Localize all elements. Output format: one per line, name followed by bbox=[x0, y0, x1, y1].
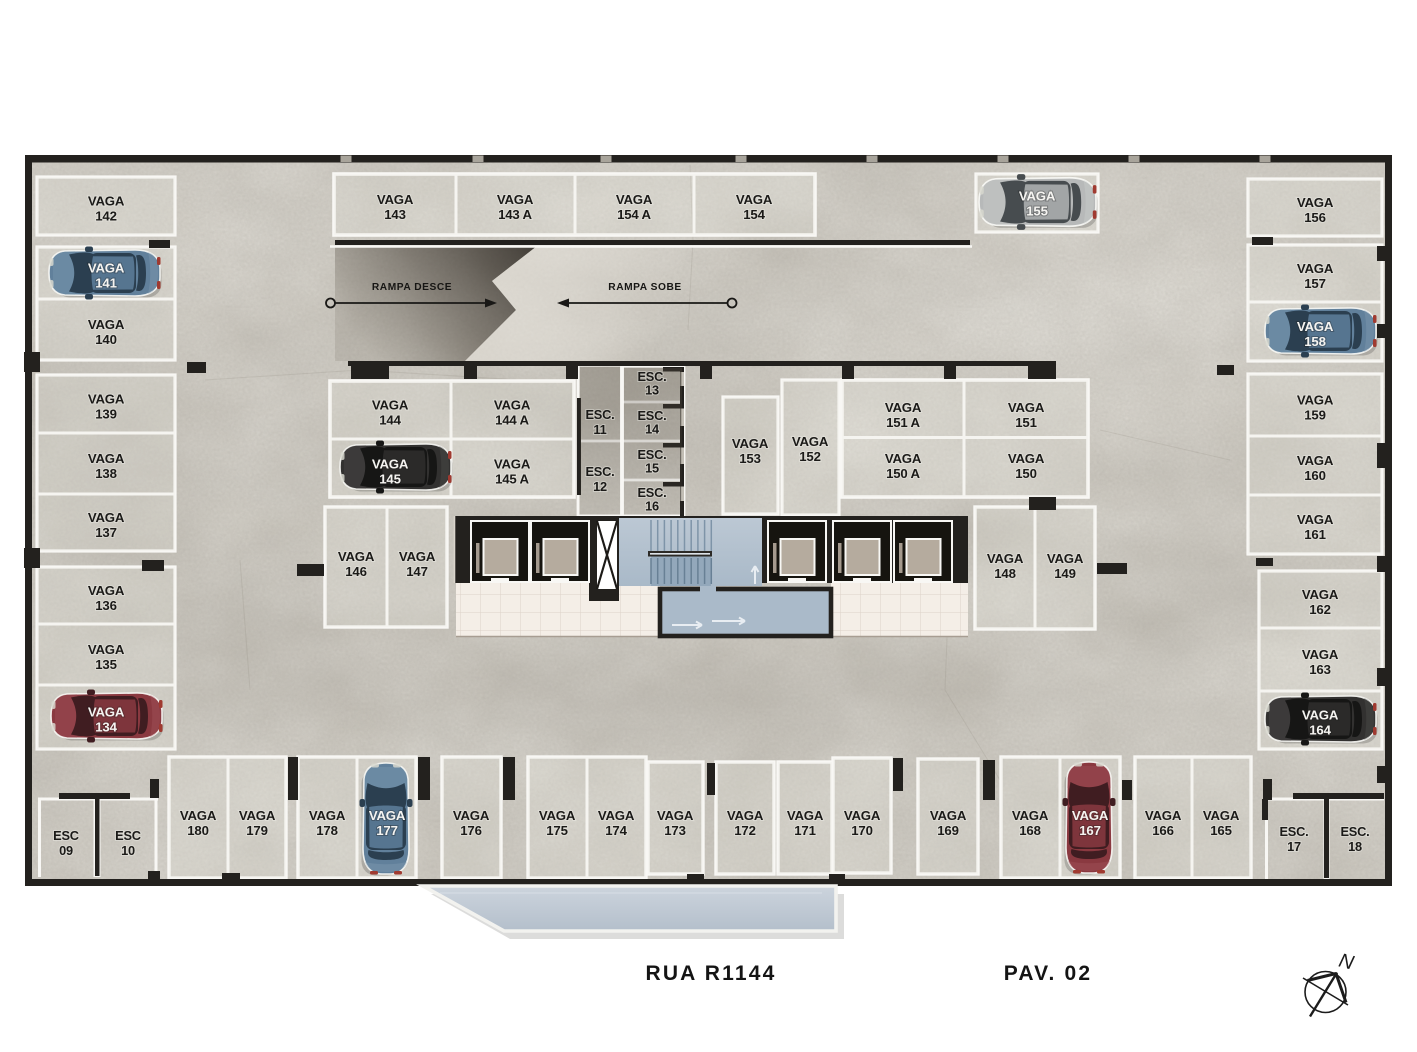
svg-text:140: 140 bbox=[95, 332, 116, 347]
svg-text:VAGA: VAGA bbox=[309, 808, 346, 823]
svg-text:VAGA: VAGA bbox=[338, 549, 375, 564]
svg-text:VAGA: VAGA bbox=[732, 436, 769, 451]
svg-text:145: 145 bbox=[379, 472, 400, 487]
svg-text:VAGA: VAGA bbox=[369, 808, 406, 823]
svg-text:RUA R1144: RUA R1144 bbox=[645, 962, 776, 985]
svg-text:VAGA: VAGA bbox=[1302, 587, 1339, 602]
svg-text:175: 175 bbox=[546, 823, 567, 838]
svg-text:ESC.: ESC. bbox=[1340, 824, 1369, 839]
svg-text:VAGA: VAGA bbox=[88, 583, 125, 598]
svg-text:12: 12 bbox=[593, 479, 607, 494]
svg-text:VAGA: VAGA bbox=[377, 192, 414, 207]
svg-text:VAGA: VAGA bbox=[1047, 551, 1084, 566]
svg-text:VAGA: VAGA bbox=[616, 192, 653, 207]
svg-text:VAGA: VAGA bbox=[497, 192, 534, 207]
svg-text:VAGA: VAGA bbox=[88, 642, 125, 657]
svg-text:VAGA: VAGA bbox=[372, 398, 409, 413]
svg-text:135: 135 bbox=[95, 657, 116, 672]
svg-text:VAGA: VAGA bbox=[1012, 808, 1049, 823]
svg-text:VAGA: VAGA bbox=[727, 808, 764, 823]
svg-text:10: 10 bbox=[121, 843, 135, 858]
svg-text:VAGA: VAGA bbox=[1008, 451, 1045, 466]
svg-text:176: 176 bbox=[460, 823, 481, 838]
svg-text:151 A: 151 A bbox=[886, 415, 920, 430]
svg-text:VAGA: VAGA bbox=[88, 705, 125, 720]
svg-text:151: 151 bbox=[1015, 415, 1036, 430]
svg-text:ESC: ESC bbox=[115, 828, 141, 843]
svg-text:141: 141 bbox=[95, 276, 116, 291]
svg-text:VAGA: VAGA bbox=[736, 192, 773, 207]
svg-text:VAGA: VAGA bbox=[1008, 400, 1045, 415]
svg-text:166: 166 bbox=[1152, 823, 1173, 838]
svg-text:155: 155 bbox=[1026, 204, 1047, 219]
svg-text:VAGA: VAGA bbox=[180, 808, 217, 823]
svg-text:VAGA: VAGA bbox=[1297, 393, 1334, 408]
svg-text:VAGA: VAGA bbox=[494, 398, 531, 413]
svg-text:158: 158 bbox=[1304, 334, 1325, 349]
svg-text:VAGA: VAGA bbox=[1297, 512, 1334, 527]
svg-text:VAGA: VAGA bbox=[88, 392, 125, 407]
svg-text:164: 164 bbox=[1309, 723, 1331, 738]
svg-text:150 A: 150 A bbox=[886, 466, 920, 481]
svg-text:137: 137 bbox=[95, 525, 116, 540]
svg-text:144: 144 bbox=[379, 413, 401, 428]
svg-text:139: 139 bbox=[95, 407, 116, 422]
svg-text:VAGA: VAGA bbox=[453, 808, 490, 823]
svg-text:161: 161 bbox=[1304, 527, 1325, 542]
svg-text:172: 172 bbox=[734, 823, 755, 838]
svg-text:143 A: 143 A bbox=[498, 207, 532, 222]
svg-text:VAGA: VAGA bbox=[885, 451, 922, 466]
svg-text:15: 15 bbox=[645, 461, 659, 476]
svg-text:VAGA: VAGA bbox=[1019, 189, 1056, 204]
svg-text:VAGA: VAGA bbox=[88, 317, 125, 332]
svg-text:VAGA: VAGA bbox=[88, 510, 125, 525]
svg-text:157: 157 bbox=[1304, 276, 1325, 291]
svg-text:160: 160 bbox=[1304, 468, 1325, 483]
svg-text:177: 177 bbox=[376, 823, 397, 838]
svg-text:163: 163 bbox=[1309, 662, 1330, 677]
svg-text:159: 159 bbox=[1304, 408, 1325, 423]
svg-text:VAGA: VAGA bbox=[787, 808, 824, 823]
svg-text:VAGA: VAGA bbox=[1297, 195, 1334, 210]
svg-text:VAGA: VAGA bbox=[657, 808, 694, 823]
svg-text:154: 154 bbox=[743, 207, 765, 222]
svg-text:16: 16 bbox=[645, 499, 659, 514]
svg-text:152: 152 bbox=[799, 449, 820, 464]
svg-text:VAGA: VAGA bbox=[885, 400, 922, 415]
svg-text:150: 150 bbox=[1015, 466, 1036, 481]
svg-text:144 A: 144 A bbox=[495, 413, 529, 428]
svg-text:148: 148 bbox=[994, 566, 1015, 581]
svg-text:PAV. 02: PAV. 02 bbox=[1004, 962, 1093, 985]
svg-text:149: 149 bbox=[1054, 566, 1075, 581]
svg-text:VAGA: VAGA bbox=[1297, 319, 1334, 334]
svg-text:17: 17 bbox=[1287, 839, 1301, 854]
svg-text:ESC: ESC bbox=[53, 828, 79, 843]
svg-text:167: 167 bbox=[1079, 823, 1100, 838]
svg-text:173: 173 bbox=[664, 823, 685, 838]
svg-text:156: 156 bbox=[1304, 210, 1325, 225]
svg-text:174: 174 bbox=[605, 823, 627, 838]
svg-text:VAGA: VAGA bbox=[1145, 808, 1182, 823]
svg-text:VAGA: VAGA bbox=[88, 261, 125, 276]
svg-text:146: 146 bbox=[345, 564, 366, 579]
svg-text:09: 09 bbox=[59, 843, 73, 858]
svg-text:154 A: 154 A bbox=[617, 207, 651, 222]
svg-text:VAGA: VAGA bbox=[88, 194, 125, 209]
svg-text:13: 13 bbox=[645, 383, 659, 398]
svg-text:VAGA: VAGA bbox=[1297, 261, 1334, 276]
svg-text:147: 147 bbox=[406, 564, 427, 579]
svg-text:145 A: 145 A bbox=[495, 472, 529, 487]
svg-text:169: 169 bbox=[937, 823, 958, 838]
svg-text:11: 11 bbox=[593, 422, 606, 437]
svg-text:VAGA: VAGA bbox=[1302, 708, 1339, 723]
svg-text:VAGA: VAGA bbox=[399, 549, 436, 564]
svg-text:168: 168 bbox=[1019, 823, 1040, 838]
svg-text:VAGA: VAGA bbox=[1203, 808, 1240, 823]
svg-text:178: 178 bbox=[316, 823, 337, 838]
svg-text:VAGA: VAGA bbox=[1072, 808, 1109, 823]
svg-text:VAGA: VAGA bbox=[598, 808, 635, 823]
svg-text:ESC.: ESC. bbox=[1279, 824, 1308, 839]
svg-text:180: 180 bbox=[187, 823, 208, 838]
svg-text:134: 134 bbox=[95, 720, 117, 735]
svg-text:18: 18 bbox=[1348, 839, 1362, 854]
svg-text:VAGA: VAGA bbox=[987, 551, 1024, 566]
svg-text:165: 165 bbox=[1210, 823, 1231, 838]
svg-text:171: 171 bbox=[794, 823, 815, 838]
svg-text:170: 170 bbox=[851, 823, 872, 838]
svg-text:142: 142 bbox=[95, 209, 116, 224]
svg-text:162: 162 bbox=[1309, 602, 1330, 617]
svg-text:VAGA: VAGA bbox=[239, 808, 276, 823]
svg-text:VAGA: VAGA bbox=[372, 457, 409, 472]
svg-text:153: 153 bbox=[739, 451, 760, 466]
svg-text:VAGA: VAGA bbox=[539, 808, 576, 823]
svg-text:ESC.: ESC. bbox=[585, 464, 614, 479]
svg-text:VAGA: VAGA bbox=[930, 808, 967, 823]
svg-text:VAGA: VAGA bbox=[494, 457, 531, 472]
svg-text:ESC.: ESC. bbox=[585, 407, 614, 422]
svg-text:RAMPA DESCE: RAMPA DESCE bbox=[372, 282, 452, 293]
svg-text:136: 136 bbox=[95, 598, 116, 613]
svg-text:143: 143 bbox=[384, 207, 405, 222]
svg-text:138: 138 bbox=[95, 466, 116, 481]
svg-text:VAGA: VAGA bbox=[792, 434, 829, 449]
svg-text:RAMPA SOBE: RAMPA SOBE bbox=[608, 282, 681, 293]
svg-text:VAGA: VAGA bbox=[844, 808, 881, 823]
svg-text:14: 14 bbox=[645, 422, 660, 437]
svg-text:179: 179 bbox=[246, 823, 267, 838]
svg-text:VAGA: VAGA bbox=[1302, 647, 1339, 662]
svg-text:VAGA: VAGA bbox=[88, 451, 125, 466]
svg-text:VAGA: VAGA bbox=[1297, 453, 1334, 468]
